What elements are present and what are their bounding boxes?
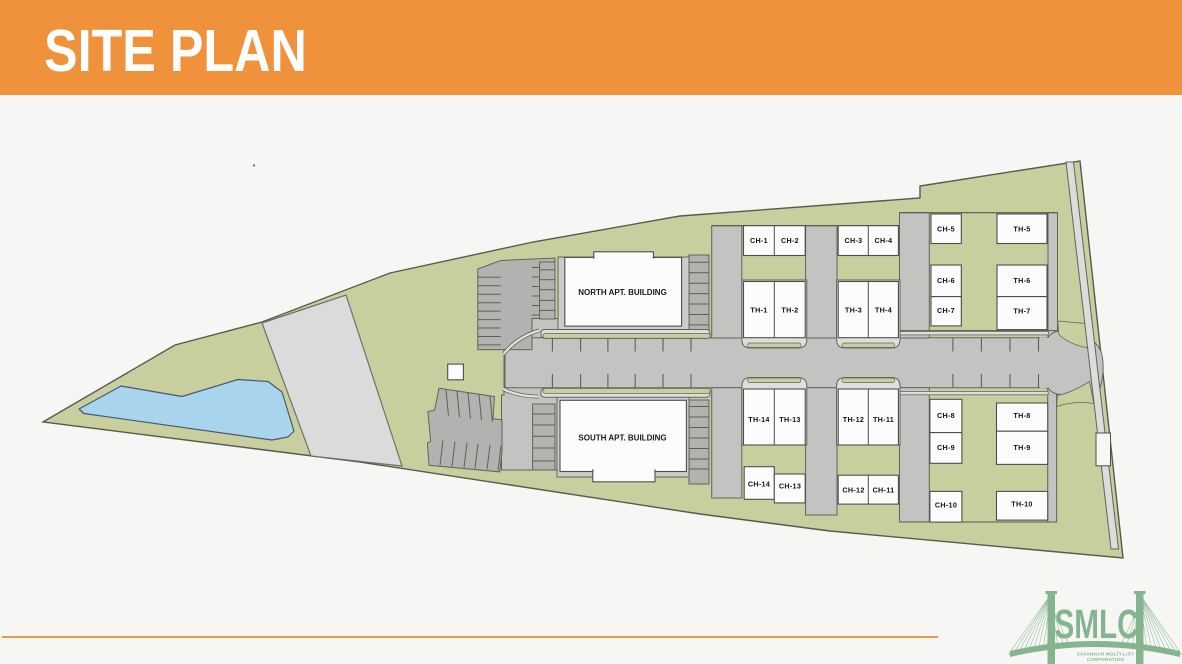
svg-text:TH-5: TH-5	[1013, 225, 1030, 234]
svg-text:CH-14: CH-14	[748, 480, 770, 489]
svg-text:CH-3: CH-3	[845, 236, 863, 245]
svg-text:TH-6: TH-6	[1013, 276, 1030, 285]
svg-text:TH-12: TH-12	[843, 415, 864, 424]
svg-text:TH-8: TH-8	[1013, 411, 1030, 420]
svg-text:SMLC: SMLC	[1055, 601, 1139, 647]
svg-text:CH-8: CH-8	[937, 411, 955, 420]
svg-text:TH-9: TH-9	[1013, 443, 1030, 452]
svg-text:SOUTH APT. BUILDING: SOUTH APT. BUILDING	[578, 434, 666, 443]
svg-text:TH-1: TH-1	[750, 306, 767, 315]
svg-text:TH-7: TH-7	[1013, 307, 1030, 316]
svg-text:CH-9: CH-9	[937, 443, 955, 452]
svg-text:CH-2: CH-2	[781, 236, 799, 245]
svg-text:CH-6: CH-6	[937, 276, 955, 285]
svg-text:TH-14: TH-14	[748, 415, 769, 424]
svg-text:CH-13: CH-13	[779, 482, 801, 491]
svg-text:TH-2: TH-2	[781, 306, 798, 315]
svg-text:TH-11: TH-11	[873, 415, 894, 424]
svg-text:TH-4: TH-4	[875, 306, 892, 315]
svg-text:TH-3: TH-3	[845, 306, 862, 315]
svg-text:TH-10: TH-10	[1011, 500, 1032, 509]
svg-text:NORTH APT. BUILDING: NORTH APT. BUILDING	[578, 288, 667, 297]
svg-text:SAVANNAH MULTI-LIST: SAVANNAH MULTI-LIST	[1077, 651, 1134, 656]
svg-text:TH-13: TH-13	[779, 415, 800, 424]
svg-text:CH-10: CH-10	[935, 501, 957, 510]
svg-text:CH-5: CH-5	[937, 225, 955, 234]
svg-text:CH-12: CH-12	[842, 486, 864, 495]
svg-text:CH-7: CH-7	[937, 306, 955, 315]
svg-text:CH-4: CH-4	[875, 236, 893, 245]
svg-text:CH-11: CH-11	[873, 486, 895, 495]
svg-text:CH-1: CH-1	[750, 236, 768, 245]
svg-text:CORPORATION: CORPORATION	[1087, 657, 1124, 662]
